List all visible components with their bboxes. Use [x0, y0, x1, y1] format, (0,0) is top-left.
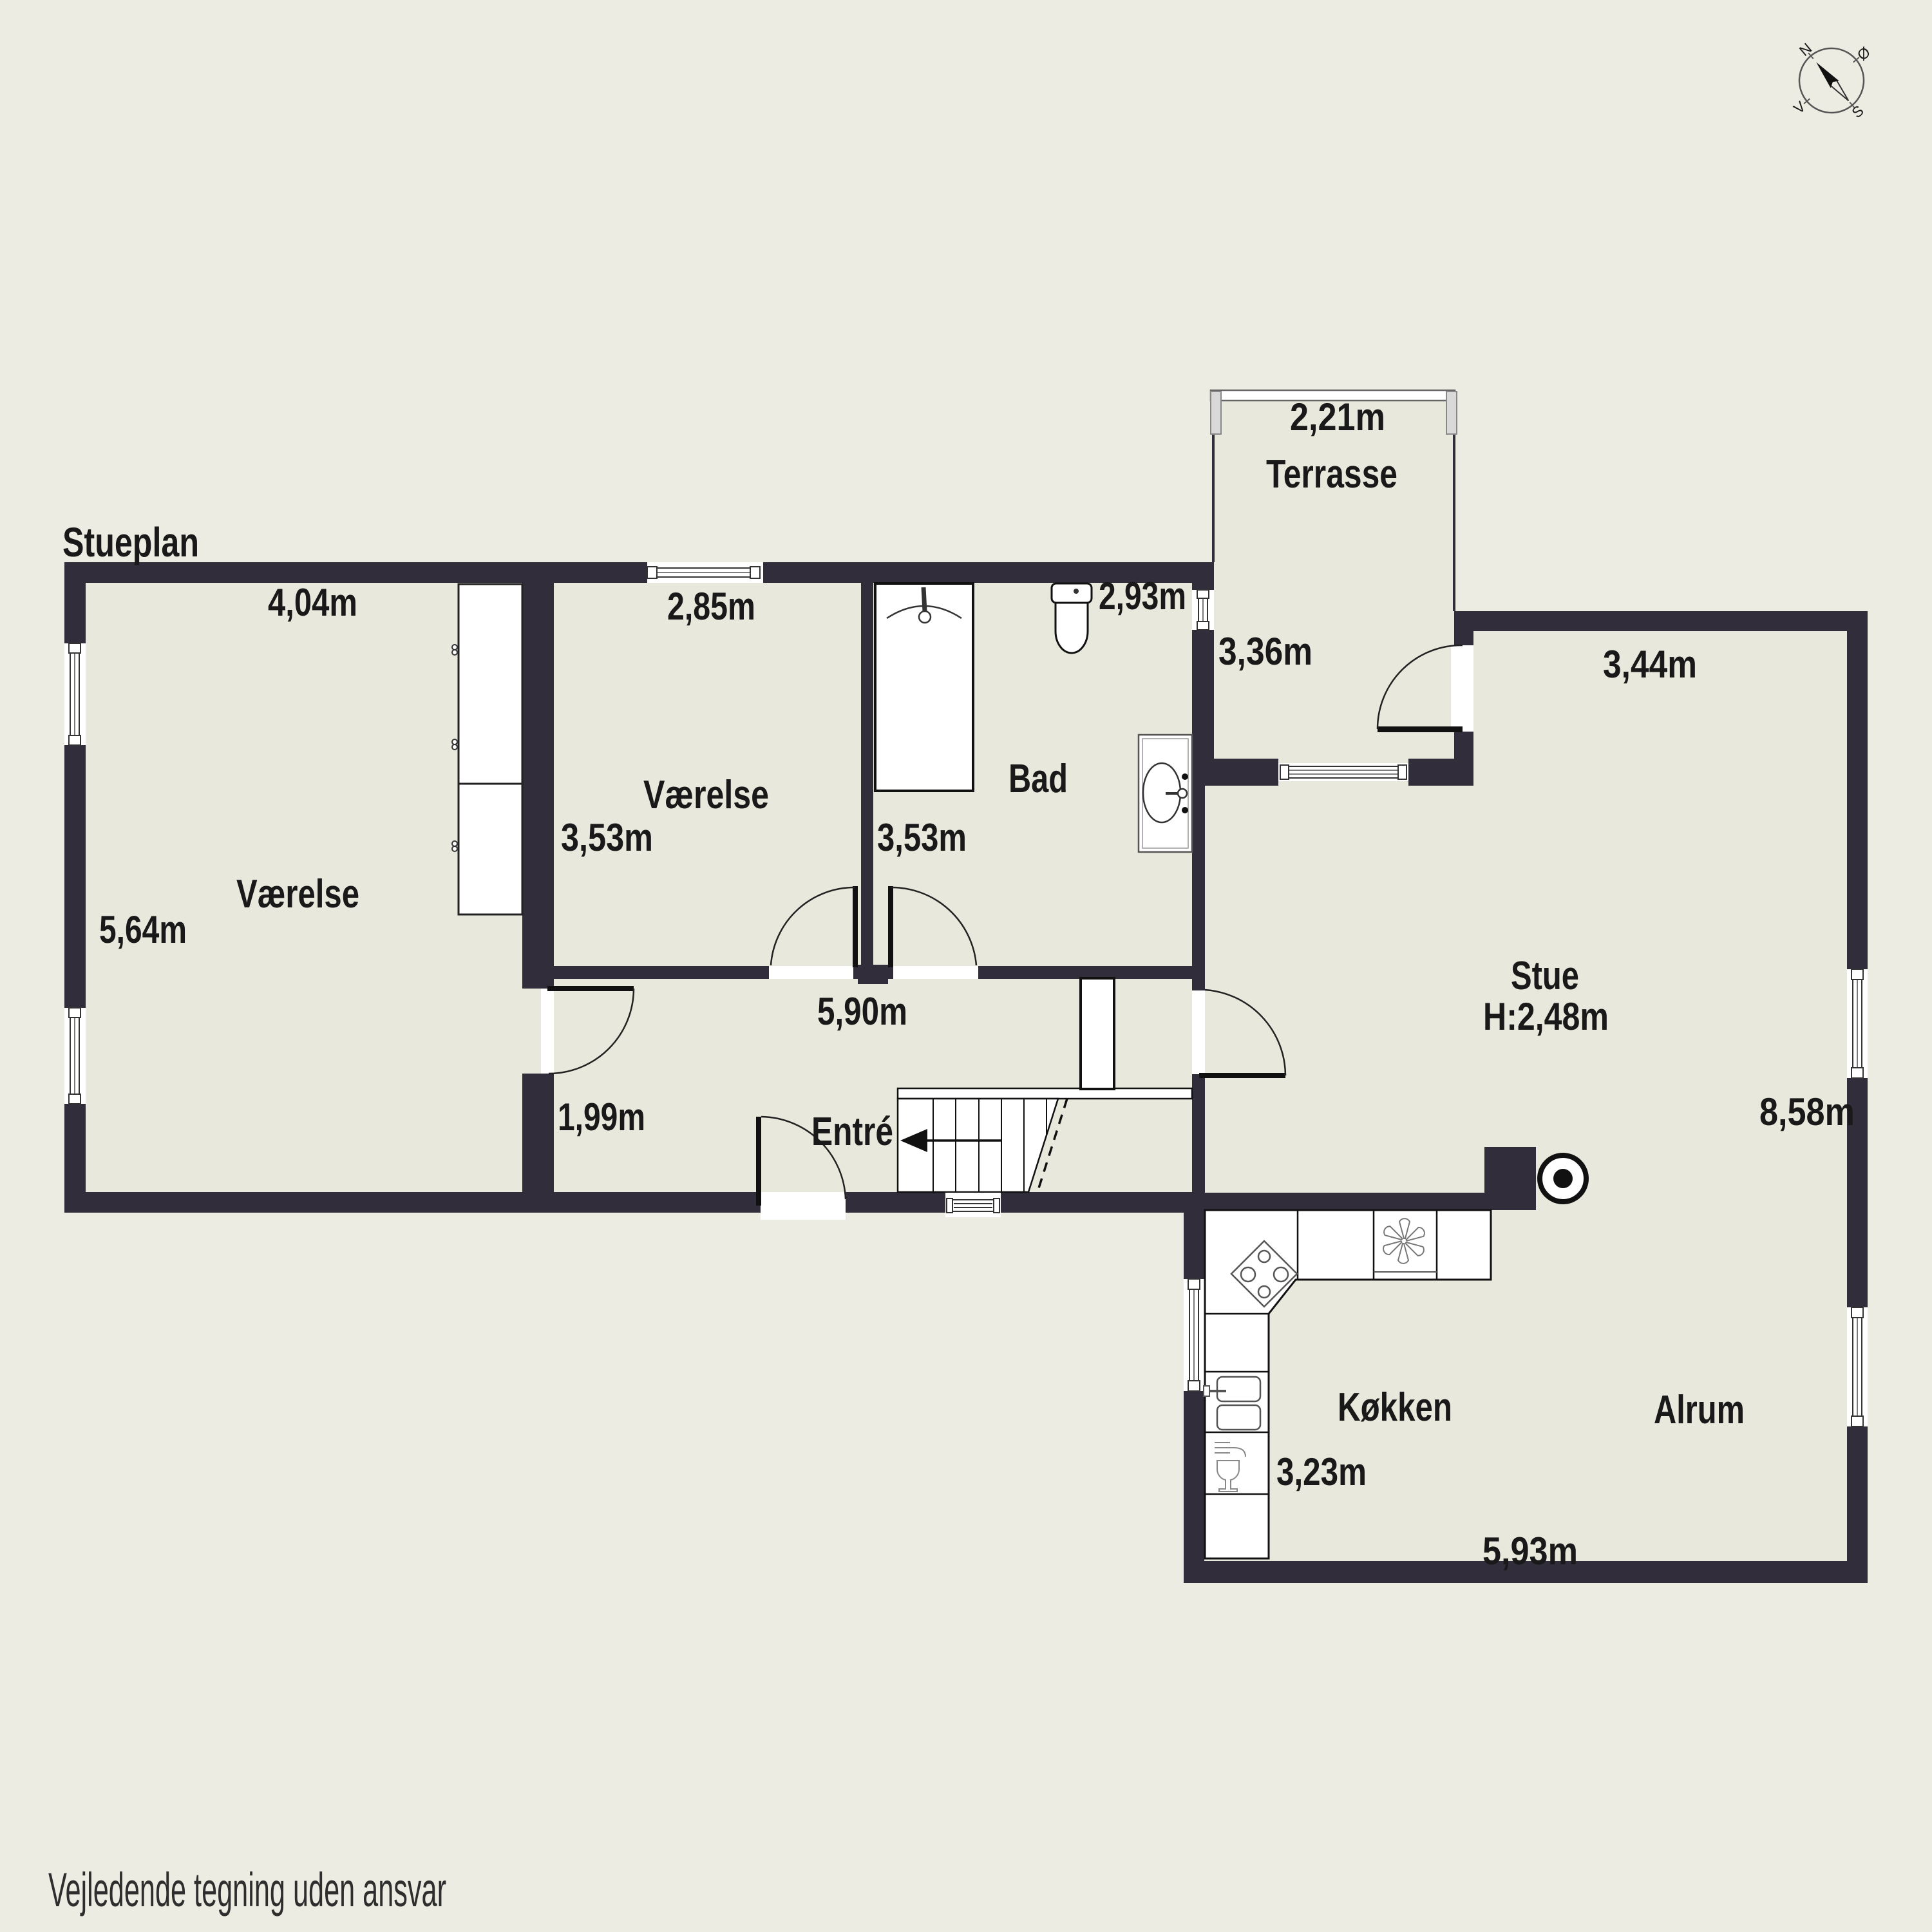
svg-text:3,53m: 3,53m	[561, 816, 653, 859]
svg-text:2,85m: 2,85m	[667, 585, 755, 628]
svg-text:2,21m: 2,21m	[1290, 395, 1385, 439]
svg-text:2,93m: 2,93m	[1099, 574, 1186, 618]
svg-text:Bad: Bad	[1009, 757, 1068, 801]
svg-text:1,99m: 1,99m	[558, 1095, 645, 1139]
svg-text:3,23m: 3,23m	[1276, 1450, 1367, 1493]
svg-text:3,53m: 3,53m	[877, 816, 967, 859]
svg-text:Entré: Entré	[811, 1110, 893, 1154]
svg-text:Værelse: Værelse	[236, 872, 359, 916]
svg-text:3,44m: 3,44m	[1603, 643, 1697, 686]
svg-text:3,36m: 3,36m	[1218, 630, 1312, 673]
svg-text:H:2,48m: H:2,48m	[1483, 995, 1609, 1038]
svg-text:8,58m: 8,58m	[1759, 1090, 1855, 1133]
svg-text:Terrasse: Terrasse	[1266, 452, 1397, 497]
svg-text:Værelse: Værelse	[643, 773, 769, 817]
svg-text:4,04m: 4,04m	[268, 581, 357, 624]
svg-text:5,93m: 5,93m	[1482, 1529, 1578, 1573]
svg-text:Stue: Stue	[1511, 954, 1579, 998]
svg-text:Alrum: Alrum	[1654, 1388, 1745, 1432]
svg-text:Vejledende tegning uden ansvar: Vejledende tegning uden ansvar	[48, 1863, 446, 1917]
svg-text:Stueplan: Stueplan	[62, 519, 199, 565]
svg-text:Køkken: Køkken	[1338, 1385, 1452, 1430]
svg-text:5,90m: 5,90m	[817, 990, 907, 1033]
svg-text:5,64m: 5,64m	[99, 908, 187, 951]
